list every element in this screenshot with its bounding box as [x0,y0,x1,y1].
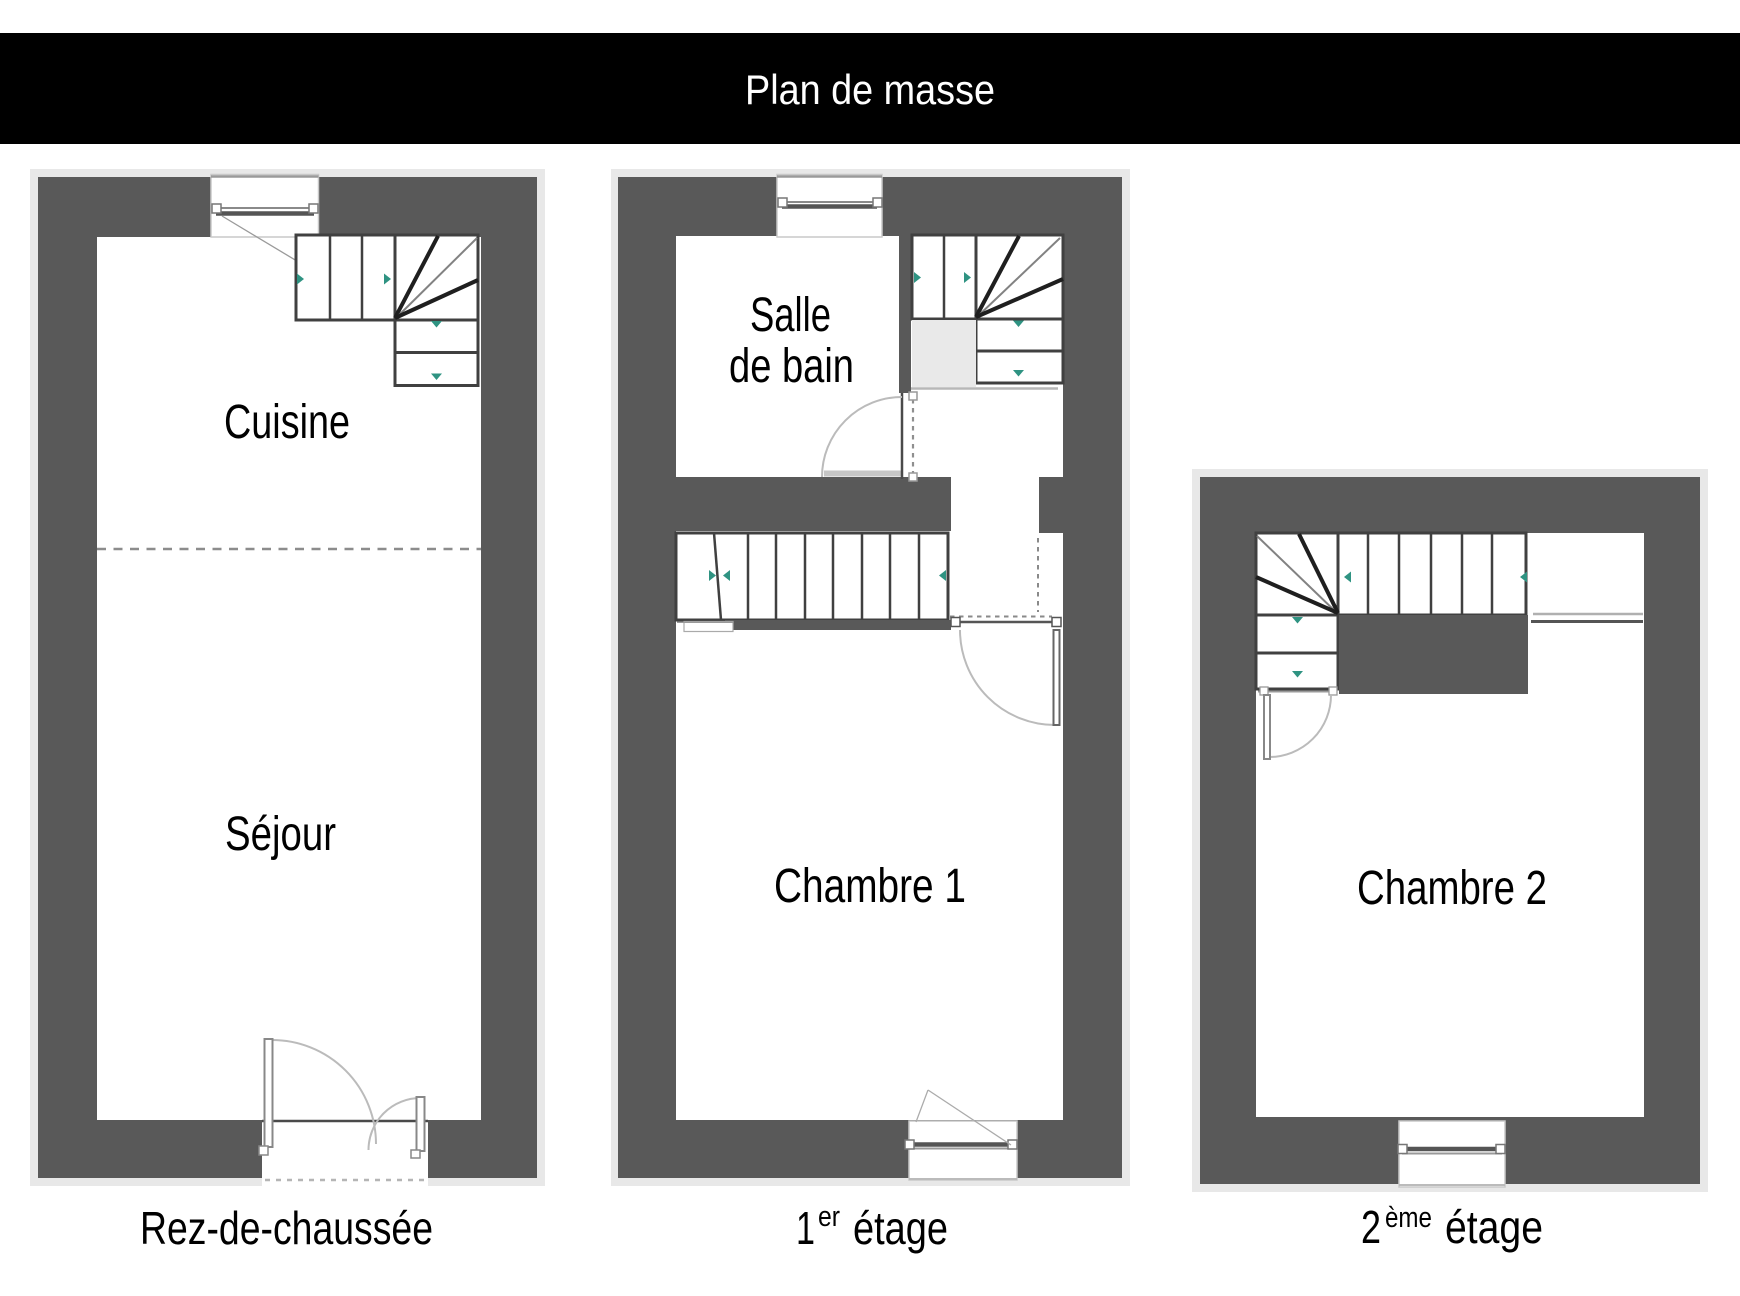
svg-text:er: er [818,1201,840,1233]
svg-text:Plan de masse: Plan de masse [745,66,995,113]
svg-text:Séjour: Séjour [225,808,336,861]
svg-text:Chambre 2: Chambre 2 [1357,862,1547,915]
svg-text:étage: étage [853,1202,948,1254]
svg-text:Cuisine: Cuisine [224,396,350,449]
svg-text:Chambre 1: Chambre 1 [774,860,966,913]
svg-text:de bain: de bain [729,340,854,393]
svg-text:étage: étage [1445,1201,1543,1253]
svg-text:1: 1 [796,1202,815,1254]
svg-text:ème: ème [1385,1202,1432,1234]
svg-text:2: 2 [1361,1201,1381,1253]
svg-text:Salle: Salle [750,289,831,342]
svg-text:Rez-de-chaussée: Rez-de-chaussée [140,1202,433,1254]
